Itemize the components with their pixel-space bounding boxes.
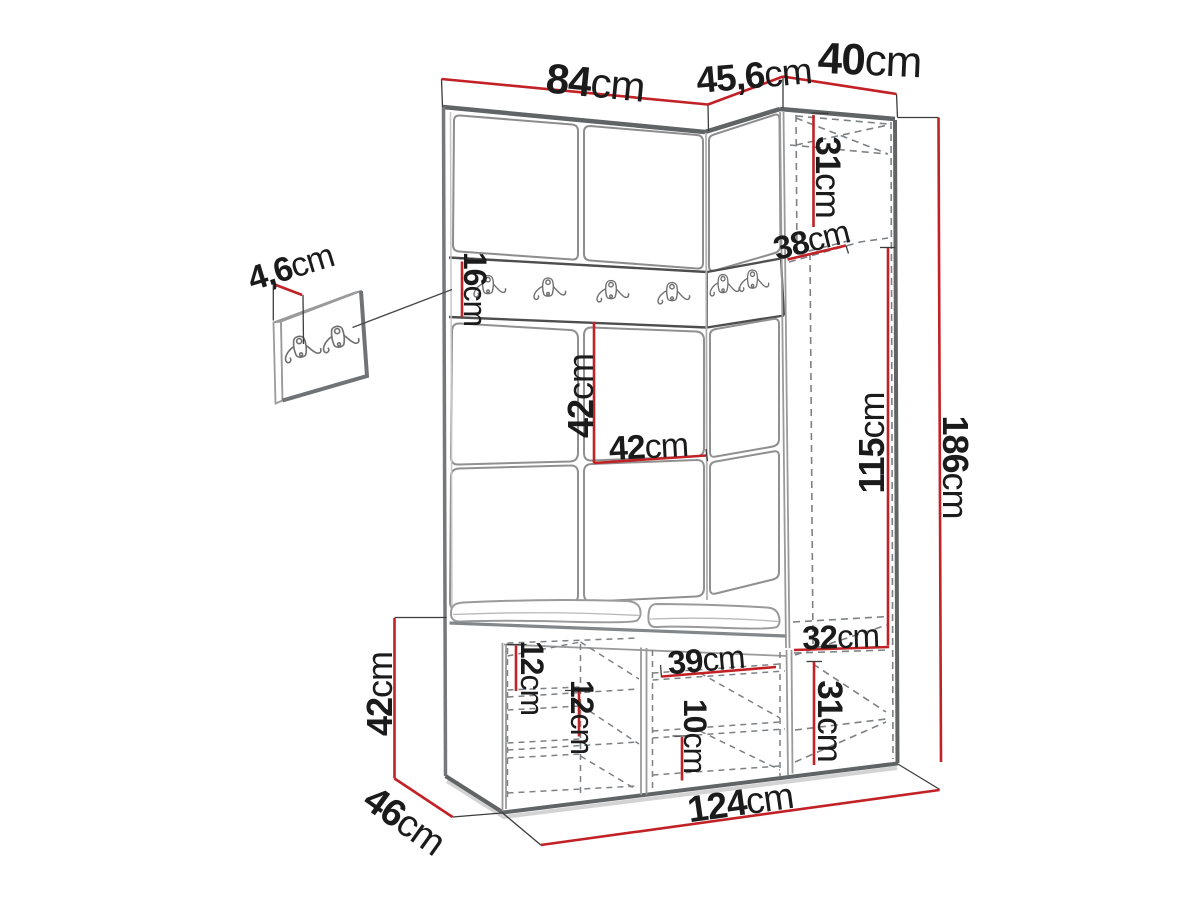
svg-text:32cm: 32cm bbox=[802, 617, 880, 657]
svg-text:186cm: 186cm bbox=[935, 415, 976, 518]
svg-text:40cm: 40cm bbox=[817, 34, 923, 87]
svg-text:16cm: 16cm bbox=[457, 252, 493, 326]
svg-text:42cm: 42cm bbox=[608, 426, 689, 468]
svg-text:39cm: 39cm bbox=[666, 638, 746, 682]
svg-text:31cm: 31cm bbox=[808, 136, 847, 218]
svg-text:42cm: 42cm bbox=[359, 652, 400, 736]
svg-text:12cm: 12cm bbox=[564, 680, 600, 754]
svg-text:12cm: 12cm bbox=[514, 641, 550, 715]
svg-text:31cm: 31cm bbox=[810, 680, 849, 762]
svg-text:10cm: 10cm bbox=[677, 699, 713, 773]
svg-text:84cm: 84cm bbox=[544, 54, 647, 110]
svg-text:42cm: 42cm bbox=[560, 354, 601, 438]
svg-text:115cm: 115cm bbox=[851, 392, 892, 493]
